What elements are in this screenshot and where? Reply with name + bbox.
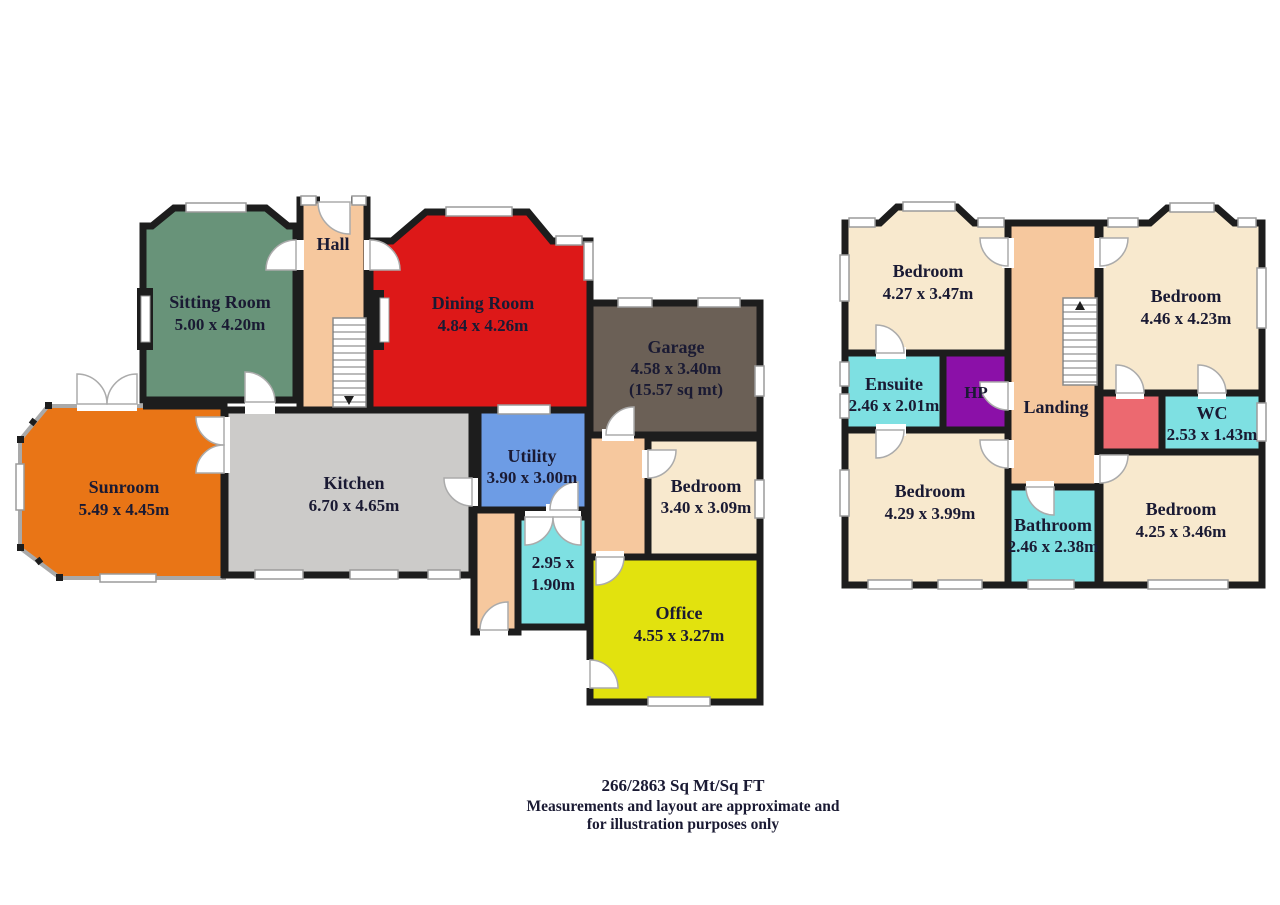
room-bedroom-front-left — [845, 207, 1008, 357]
window — [938, 580, 982, 589]
footer-disclaimer-line2: for illustration purposes only — [587, 816, 779, 833]
window — [1028, 580, 1074, 589]
room-label-garage-area: (15.57 sq mt) — [629, 380, 723, 399]
window — [1108, 218, 1138, 227]
room-label-bedroom-fr-dims: 4.46 x 4.23m — [1141, 309, 1232, 328]
room-label-bedroom-bl-name: Bedroom — [895, 481, 966, 501]
window — [698, 298, 740, 307]
window — [1257, 268, 1266, 328]
room-label-utility-dims: 3.90 x 3.00m — [487, 468, 578, 487]
window — [352, 196, 366, 205]
room-label-bedroom-ground-dims: 3.40 x 3.09m — [661, 498, 752, 517]
fireplace-recess — [380, 298, 389, 342]
window — [840, 470, 849, 516]
room-label-kitchen-dims: 6.70 x 4.65m — [309, 496, 400, 515]
window — [255, 570, 303, 579]
window — [903, 202, 955, 211]
window — [301, 196, 316, 205]
room-label-utility-name: Utility — [508, 446, 557, 466]
room-label-garage-name: Garage — [648, 337, 705, 357]
window — [755, 366, 764, 396]
window — [16, 464, 24, 510]
window — [1148, 580, 1228, 589]
window — [618, 298, 652, 307]
window — [840, 255, 849, 301]
room-label-office-name: Office — [656, 603, 703, 623]
window — [1238, 218, 1256, 227]
sunroom-corner-nub — [45, 402, 52, 409]
room-label-sunroom-dims: 5.49 x 4.45m — [79, 500, 170, 519]
room-label-bedroom-fr-name: Bedroom — [1151, 286, 1222, 306]
window — [446, 207, 512, 216]
room-shower — [1100, 393, 1162, 452]
footer-disclaimer-line1: Measurements and layout are approximate … — [526, 798, 839, 815]
room-label-bedroom-fl-name: Bedroom — [893, 261, 964, 281]
window — [840, 362, 849, 386]
room-label-kitchen-name: Kitchen — [324, 473, 385, 493]
staircase-ground — [333, 318, 366, 407]
room-label-bedroom-bl-dims: 4.29 x 3.99m — [885, 504, 976, 523]
room-label-dining-name: Dining Room — [432, 293, 535, 313]
room-label-sitting-name: Sitting Room — [169, 292, 271, 312]
room-label-office-dims: 4.55 x 3.27m — [634, 626, 725, 645]
window — [584, 242, 593, 280]
corridor-garage-side — [586, 434, 648, 560]
room-label-store-dims2: 1.90m — [531, 575, 575, 594]
window — [186, 203, 246, 212]
window — [498, 405, 550, 414]
door-arc — [77, 374, 107, 404]
floor-plan-canvas: Sitting Room 5.00 x 4.20m Hall Dining Ro… — [0, 0, 1280, 905]
room-label-bedroom-br-dims: 4.25 x 3.46m — [1136, 522, 1227, 541]
footer-area-summary: 266/2863 Sq Mt/Sq FT — [602, 776, 766, 795]
room-label-hp: HP — [964, 383, 988, 402]
room-label-hall: Hall — [316, 234, 349, 254]
ground-floor-plan: Sitting Room 5.00 x 4.20m Hall Dining Ro… — [16, 196, 764, 706]
hall-staircase — [333, 318, 366, 407]
room-label-landing: Landing — [1023, 397, 1088, 417]
fireplace-recess — [141, 296, 150, 342]
room-label-dining-dims: 4.84 x 4.26m — [438, 316, 529, 335]
door-arc — [107, 374, 137, 404]
window — [978, 218, 1004, 227]
room-label-ensuite-name: Ensuite — [865, 374, 923, 394]
window — [100, 574, 156, 582]
window — [849, 218, 875, 227]
window — [350, 570, 398, 579]
window — [648, 697, 710, 706]
window — [428, 570, 460, 579]
window — [1257, 403, 1266, 441]
sunroom-corner-nub — [17, 436, 24, 443]
room-label-ensuite-dims: 2.46 x 2.01m — [849, 396, 940, 415]
sunroom-corner-nub — [17, 544, 24, 551]
sunroom-corner-nub — [56, 574, 63, 581]
staircase-first — [1063, 298, 1097, 385]
window — [755, 480, 764, 518]
room-label-bedroom-fl-dims: 4.27 x 3.47m — [883, 284, 974, 303]
room-label-bathroom-name: Bathroom — [1014, 515, 1092, 535]
landing-staircase — [1063, 298, 1097, 385]
room-label-bedroom-ground-name: Bedroom — [671, 476, 742, 496]
window — [868, 580, 912, 589]
footer-disclaimer: 266/2863 Sq Mt/Sq FT Measurements and la… — [526, 776, 839, 833]
room-label-bedroom-br-name: Bedroom — [1146, 499, 1217, 519]
window — [840, 394, 849, 418]
room-label-sunroom-name: Sunroom — [89, 477, 160, 497]
room-label-store-dims1: 2.95 x — [532, 553, 575, 572]
room-label-bathroom-dims: 2.46 x 2.38m — [1008, 537, 1099, 556]
room-label-wc-name: WC — [1197, 403, 1228, 423]
first-floor-plan: Bedroom 4.27 x 3.47m Landing Bedroom 4.4… — [840, 202, 1266, 589]
room-label-garage-dims: 4.58 x 3.40m — [631, 359, 722, 378]
room-label-wc-dims: 2.53 x 1.43m — [1167, 425, 1258, 444]
window — [1170, 203, 1214, 212]
window — [556, 236, 582, 245]
room-label-sitting-dims: 5.00 x 4.20m — [175, 315, 266, 334]
